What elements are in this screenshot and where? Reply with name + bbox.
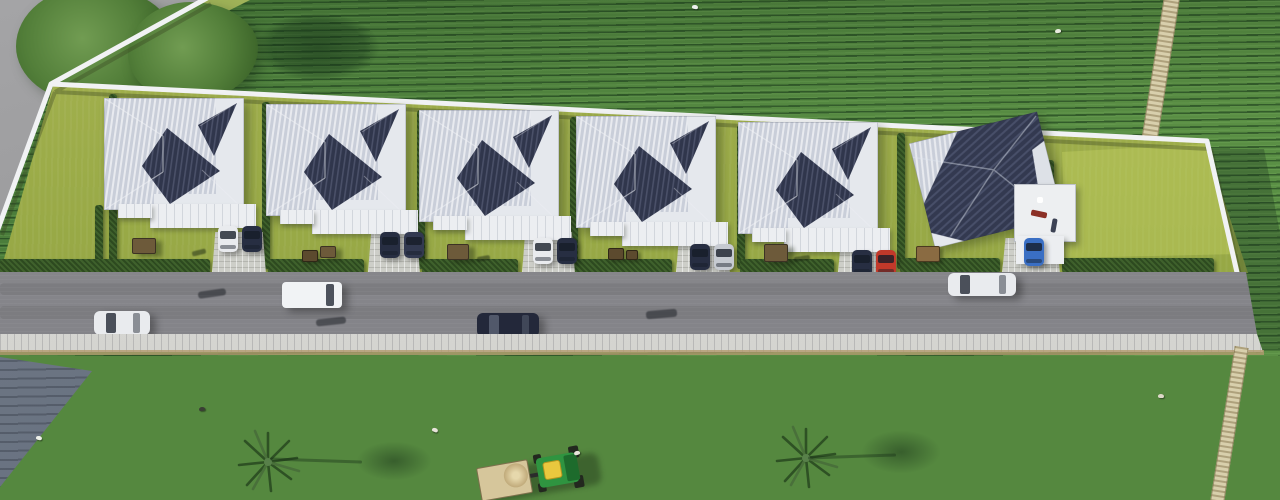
front-hedge [1062, 258, 1214, 273]
garden-furniture [447, 244, 469, 260]
porch-step [752, 228, 786, 242]
car-rear-glass [692, 263, 708, 267]
palm-shadow [846, 422, 956, 482]
tractor-cab [542, 460, 563, 481]
garden-furniture [764, 244, 788, 262]
tire-wear [0, 306, 1280, 319]
road-car [948, 273, 1016, 296]
car-rear-glass [220, 245, 236, 249]
parked-car [690, 244, 710, 270]
car-rear-glass [522, 315, 529, 335]
soil-strip [0, 350, 1264, 355]
porch-step [590, 222, 624, 236]
parked-car [218, 226, 238, 252]
porch-canopy [622, 222, 728, 246]
parked-car [1024, 238, 1044, 266]
palm-tree [233, 427, 303, 497]
car-windshield [878, 255, 894, 263]
hip-roof [576, 116, 716, 228]
car-windshield [716, 249, 732, 257]
bin [626, 250, 638, 260]
bin [302, 250, 318, 262]
car-windshield [692, 249, 708, 257]
lounge-chair [1050, 218, 1057, 233]
bird [692, 5, 698, 10]
car-windshield [244, 231, 260, 239]
road-van [282, 282, 342, 308]
car-windshield [220, 231, 236, 239]
porch-canopy [784, 228, 890, 252]
car-windshield [106, 313, 116, 333]
person-shadow [794, 255, 811, 262]
parked-car [242, 226, 262, 252]
car-rear-glass [1026, 259, 1042, 263]
hip-roof [738, 122, 878, 234]
house-1 [104, 98, 274, 283]
porch-step [118, 204, 152, 218]
car-rear-glass [716, 263, 732, 267]
person-shadow [192, 248, 207, 256]
house-2 [266, 104, 436, 289]
road-car [94, 311, 150, 335]
car-rear-glass [244, 245, 260, 249]
person-shadow [477, 255, 491, 262]
bird [1158, 394, 1164, 398]
car-rear-glass [535, 257, 551, 261]
porch-canopy [150, 204, 256, 228]
parked-car [380, 232, 400, 258]
parked-car [714, 244, 734, 270]
hip-roof [419, 110, 559, 222]
bin [608, 248, 624, 260]
car-rear-glass [559, 257, 575, 261]
car-windshield [535, 243, 551, 251]
car-windshield [960, 275, 970, 294]
porch-step [433, 216, 467, 230]
car-windshield [489, 315, 499, 335]
terrace-table [1037, 197, 1043, 203]
car-windshield [854, 255, 870, 263]
car-windshield [559, 243, 575, 251]
porch-canopy [312, 210, 418, 234]
palm-shadow [342, 434, 446, 488]
hip-roof [104, 98, 244, 210]
garden-furniture [132, 238, 156, 254]
parked-car [557, 238, 577, 264]
garden-furniture [320, 246, 336, 258]
car-windshield [1026, 243, 1042, 251]
aerial-render-scene [0, 0, 1280, 500]
car-rear-glass [133, 313, 140, 333]
parked-car [533, 238, 553, 264]
garden-bench [916, 246, 940, 262]
car-windshield [382, 237, 398, 245]
porch-canopy [465, 216, 571, 240]
house-3 [419, 110, 589, 295]
tire-wear [0, 283, 1280, 295]
car-rear-glass [999, 275, 1006, 294]
car-rear-glass [382, 251, 398, 255]
porch-step [280, 210, 314, 224]
van-windshield [326, 284, 334, 306]
rooftop-terrace [1014, 184, 1076, 242]
hip-roof [266, 104, 406, 216]
lounge-chair [1031, 209, 1048, 218]
road-car [477, 313, 539, 337]
